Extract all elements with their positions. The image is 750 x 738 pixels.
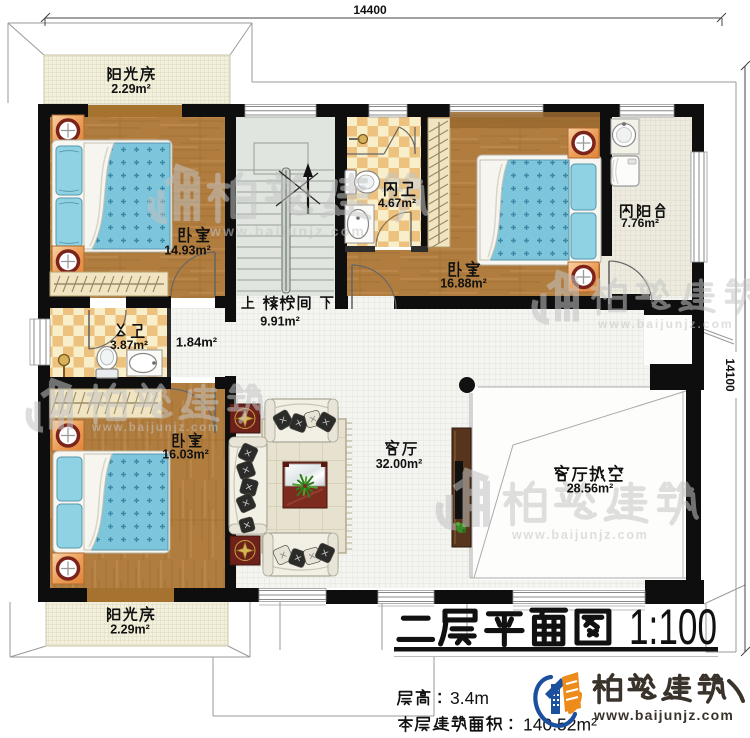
- svg-text:www.baijunjz.com: www.baijunjz.com: [597, 317, 734, 331]
- svg-text:4.67m²: 4.67m²: [378, 196, 416, 210]
- svg-text:28.56m²: 28.56m²: [567, 482, 614, 496]
- svg-text:7.76m²: 7.76m²: [621, 216, 659, 230]
- svg-text:14.93m²: 14.93m²: [164, 244, 211, 258]
- svg-text:16.88m²: 16.88m²: [440, 277, 487, 291]
- svg-text:3.87m²: 3.87m²: [110, 338, 148, 352]
- svg-text:www.baijunjz.com: www.baijunjz.com: [511, 528, 649, 542]
- svg-text:16.03m²: 16.03m²: [162, 448, 209, 462]
- svg-text:3.4m: 3.4m: [450, 688, 489, 708]
- svg-text:32.00m²: 32.00m²: [376, 457, 423, 471]
- svg-text:www.baijunjz.com: www.baijunjz.com: [593, 707, 734, 723]
- svg-text:www.baijunjz.com: www.baijunjz.com: [209, 223, 366, 239]
- svg-text:14400: 14400: [353, 3, 387, 17]
- svg-text:1.84m²: 1.84m²: [176, 335, 218, 350]
- svg-text:9.91m²: 9.91m²: [260, 315, 300, 329]
- svg-text:www.baijunjz.com: www.baijunjz.com: [91, 422, 220, 434]
- svg-text:14100: 14100: [723, 358, 737, 392]
- svg-text:1:100: 1:100: [629, 599, 717, 655]
- svg-text:2.29m²: 2.29m²: [111, 82, 151, 96]
- svg-text:2.29m²: 2.29m²: [110, 623, 150, 637]
